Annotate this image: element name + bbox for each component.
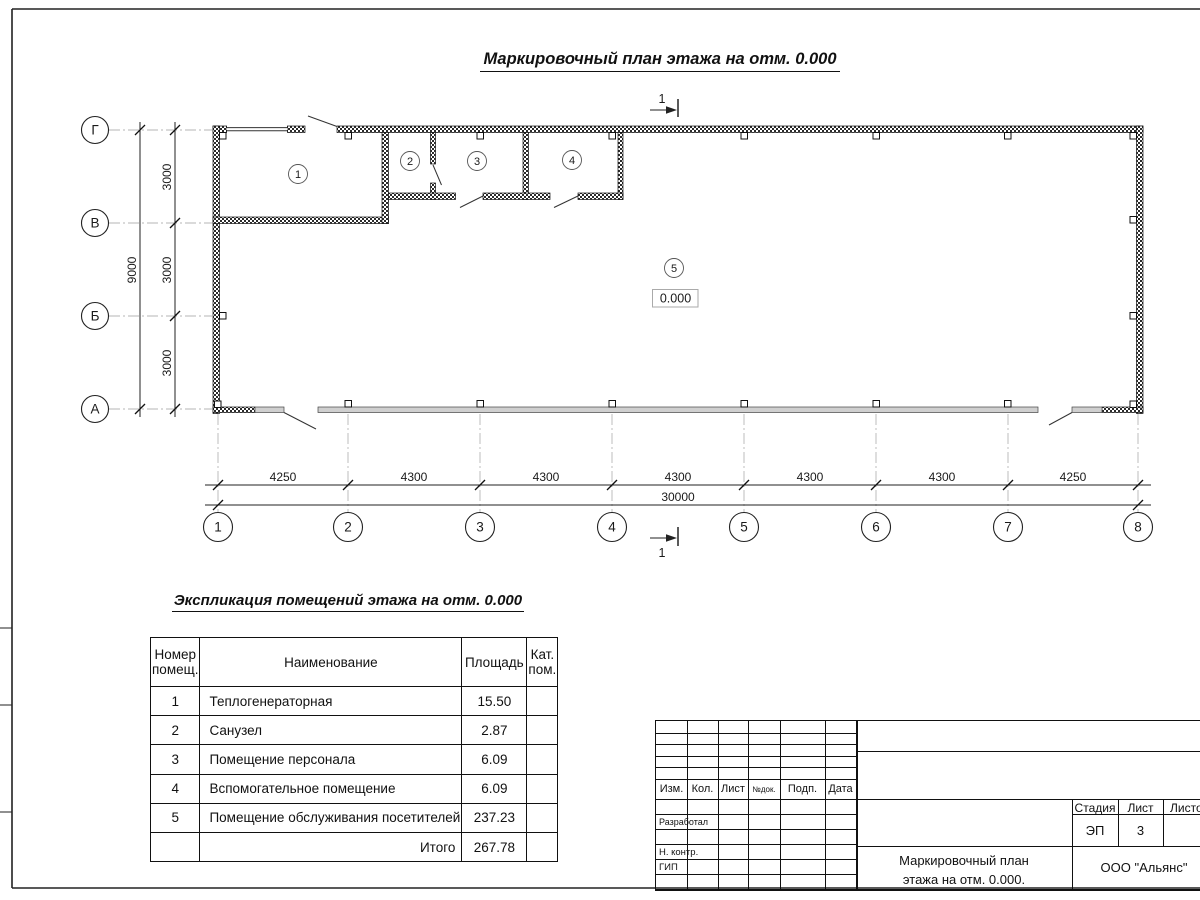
total-label: Итого xyxy=(200,832,462,861)
room-number: 4 xyxy=(569,155,575,167)
rev-col-podp: Подп. xyxy=(780,784,825,795)
window xyxy=(227,125,287,133)
table-row: 4 Вспомогательное помещение 6.09 xyxy=(151,774,558,803)
col-header-number: Номер помещ. xyxy=(151,638,200,687)
room-number: 2 xyxy=(407,156,413,168)
section-mark-bottom: 1 xyxy=(650,527,678,560)
page-title: Маркировочный план этажа на отм. 0.000 xyxy=(400,50,920,72)
stage-label: Стадия xyxy=(1072,802,1118,814)
dim-total-label: 30000 xyxy=(661,490,695,504)
sheet-value: 3 xyxy=(1118,824,1163,837)
axis-label: 1 xyxy=(214,520,222,535)
dimension-labels: 4250 4300 4300 4300 4300 4300 4250 30000… xyxy=(125,163,1087,504)
col-header-area: Площадь xyxy=(462,638,527,687)
rev-col-ndok: №док. xyxy=(748,786,780,794)
sheet-label: Лист xyxy=(1118,802,1163,814)
rev-col-izm: Изм. xyxy=(656,784,687,795)
dim-total-label: 9000 xyxy=(125,256,139,283)
col-header-name: Наименование xyxy=(200,638,462,687)
company-name: ООО "Альянс" xyxy=(1072,861,1200,874)
table-row: 1 Теплогенераторная 15.50 xyxy=(151,687,558,716)
role-ncontrol: Н. контр. xyxy=(659,848,719,858)
axis-label: 7 xyxy=(1004,520,1012,535)
col-header-category: Кат. пом. xyxy=(527,638,558,687)
axis-lines xyxy=(109,130,1138,513)
axis-label: 5 xyxy=(740,520,748,535)
axis-bubbles-left xyxy=(82,117,109,423)
role-developed: Разработал xyxy=(659,818,719,827)
exposition-table: Номер помещ. Наименование Площадь Кат. п… xyxy=(150,637,558,862)
doc-title: Маркировочный план этажа на отм. 0.000. xyxy=(884,852,1044,890)
title-block: Изм. Кол. Лист №док. Подп. Дата Разработ… xyxy=(655,720,1200,891)
sheets-label: Листов xyxy=(1163,802,1200,814)
rev-col-data: Дата xyxy=(825,784,856,795)
dim-label: 3000 xyxy=(160,349,174,376)
dim-label: 3000 xyxy=(160,256,174,283)
dim-label: 4250 xyxy=(1060,470,1087,484)
stage-value: ЭП xyxy=(1072,824,1118,837)
room-number: 1 xyxy=(295,169,301,181)
exposition-title: Экспликация помещений этажа на отм. 0.00… xyxy=(150,592,546,612)
dim-label: 4300 xyxy=(401,470,428,484)
dimension-ticks xyxy=(135,125,1143,510)
axis-label: Г xyxy=(91,123,99,138)
axis-bubble-labels-left: Г В Б А xyxy=(90,123,99,417)
axis-label: 8 xyxy=(1134,520,1142,535)
axis-label: 6 xyxy=(872,520,880,535)
dim-label: 4250 xyxy=(270,470,297,484)
glazing xyxy=(255,407,1102,413)
room-bubbles xyxy=(289,151,684,278)
section-mark-top: 1 xyxy=(650,92,678,117)
rev-col-kol: Кол. xyxy=(687,784,718,795)
page-title-text: Маркировочный план этажа на отм. 0.000 xyxy=(480,50,839,72)
rev-col-list: Лист xyxy=(718,784,748,795)
table-header-row: Номер помещ. Наименование Площадь Кат. п… xyxy=(151,638,558,687)
table-row: 5 Помещение обслуживания посетителей 237… xyxy=(151,803,558,832)
dim-label: 3000 xyxy=(160,163,174,190)
axis-label: 3 xyxy=(476,520,484,535)
exposition-title-text: Экспликация помещений этажа на отм. 0.00… xyxy=(172,592,524,612)
elevation-mark: 0.000 xyxy=(653,290,699,308)
axis-label: А xyxy=(90,402,99,417)
axis-label: В xyxy=(90,216,99,231)
section-number: 1 xyxy=(659,92,666,106)
table-row: 3 Помещение персонала 6.09 xyxy=(151,745,558,774)
total-value: 267.78 xyxy=(462,832,527,861)
drawing-sheet: { "sheet": { "main_title": "Маркировочны… xyxy=(0,0,1200,900)
room-number: 5 xyxy=(671,263,677,275)
dim-label: 4300 xyxy=(665,470,692,484)
table-total-row: Итого 267.78 xyxy=(151,832,558,861)
table-row: 2 Санузел 2.87 xyxy=(151,716,558,745)
dim-label: 4300 xyxy=(533,470,560,484)
section-number: 1 xyxy=(659,546,666,560)
dim-label: 4300 xyxy=(797,470,824,484)
elevation-value: 0.000 xyxy=(660,292,691,306)
dim-label: 4300 xyxy=(929,470,956,484)
axis-label: Б xyxy=(91,309,100,324)
room-number: 3 xyxy=(474,156,480,168)
axis-label: 4 xyxy=(608,520,616,535)
axis-label: 2 xyxy=(344,520,352,535)
role-gip: ГИП xyxy=(659,863,719,873)
